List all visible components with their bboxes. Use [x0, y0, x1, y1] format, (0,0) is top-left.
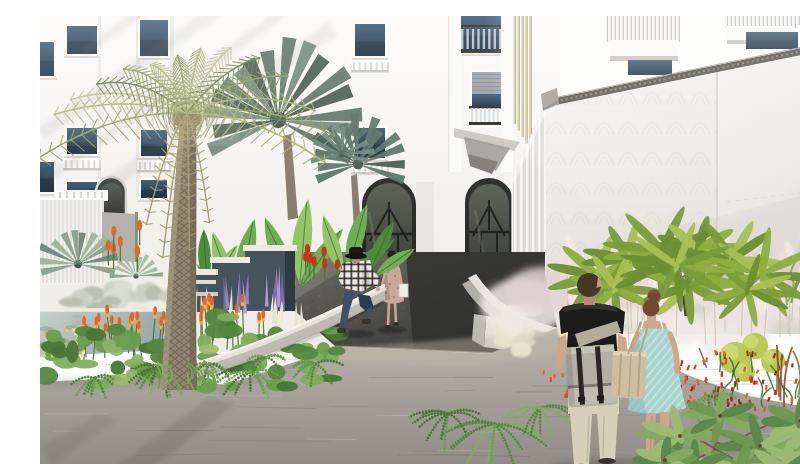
woman-head — [643, 300, 660, 317]
messenger-bag — [565, 344, 618, 407]
shopping-bag — [399, 284, 408, 297]
tote-bag — [611, 351, 647, 399]
courtyard-scene — [40, 16, 800, 464]
sun-wash-overlay — [40, 16, 800, 236]
red-grasses — [777, 335, 800, 411]
architectural-rendering: Sun-washed rendering of a white apartmen… — [40, 16, 800, 464]
